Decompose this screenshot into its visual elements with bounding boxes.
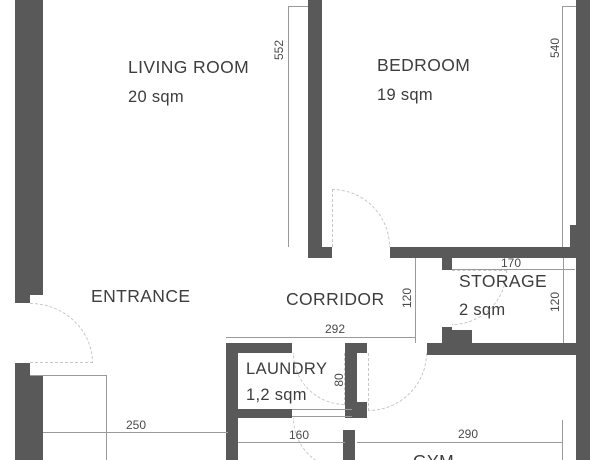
- laundry-passage-line-top: [292, 409, 352, 410]
- dim-label-120-storage: 120: [548, 292, 562, 312]
- dim-line-292: [226, 337, 415, 338]
- dim-label-80: 80: [332, 373, 346, 386]
- dim-tick-540: [562, 6, 576, 7]
- dim-label-540: 540: [548, 38, 562, 58]
- room-area-laundry: 1,2 sqm: [246, 386, 307, 405]
- room-label-corridor: CORRIDOR: [286, 289, 384, 310]
- dim-tick-552: [288, 6, 308, 7]
- dim-line-120-storage: [563, 258, 564, 343]
- room-label-laundry: LAUNDRY: [246, 360, 327, 379]
- room-label-gym: GYM: [413, 451, 454, 460]
- room-label-storage: STORAGE: [459, 271, 547, 292]
- dim-line-160: [238, 442, 345, 443]
- dim-tick-290: [562, 420, 563, 460]
- wall-gym-top: [427, 343, 588, 355]
- room-area-bedroom: 19 sqm: [377, 86, 433, 105]
- dim-label-170: 170: [501, 256, 521, 270]
- room-label-bedroom: BEDROOM: [377, 55, 470, 76]
- dim-label-290: 290: [458, 427, 478, 441]
- room-label-entrance: ENTRANCE: [91, 286, 190, 307]
- gym-door-arc: [368, 353, 427, 411]
- wall-laundry-left: [226, 343, 238, 460]
- laundry-passage-line-bottom: [292, 416, 352, 417]
- wall-left-bottom: [15, 375, 43, 460]
- dim-line-552: [288, 6, 289, 247]
- closet-outline-right: [106, 375, 107, 460]
- wall-bedroom-sill-left: [308, 247, 332, 258]
- wall-storage-junction: [452, 330, 472, 343]
- wall-left-stub-upper: [15, 295, 30, 303]
- wall-storage-stub-bottom: [442, 327, 452, 343]
- bedroom-door-arc: [332, 189, 390, 247]
- room-area-living-room: 20 sqm: [128, 88, 184, 107]
- room-area-storage: 2 sqm: [459, 301, 505, 320]
- dim-label-120-corridor: 120: [400, 288, 414, 308]
- dim-label-292: 292: [325, 322, 345, 336]
- wall-corridor-top: [390, 247, 588, 258]
- entrance-door-arc: [30, 303, 93, 363]
- dim-label-250: 250: [126, 418, 146, 432]
- dim-line-250: [43, 432, 228, 433]
- dim-line-290: [357, 442, 562, 443]
- wall-left-stub-lower: [15, 363, 30, 375]
- dim-label-160: 160: [289, 428, 309, 442]
- dim-label-552: 552: [272, 40, 286, 60]
- dim-line-120-corridor: [415, 258, 416, 343]
- wall-storage-stub-top: [442, 258, 452, 270]
- wall-laundry-bottom: [238, 409, 292, 418]
- wall-living-bedroom: [308, 0, 322, 258]
- room-label-living-room: LIVING ROOM: [128, 57, 249, 78]
- wall-right-outer: [576, 0, 590, 460]
- dim-line-540: [562, 6, 563, 247]
- wall-right-step: [570, 225, 576, 257]
- wall-left-top: [15, 0, 43, 295]
- floor-plan: LIVING ROOM 20 sqm BEDROOM 19 sqm ENTRAN…: [0, 0, 600, 460]
- closet-outline-top: [30, 375, 106, 376]
